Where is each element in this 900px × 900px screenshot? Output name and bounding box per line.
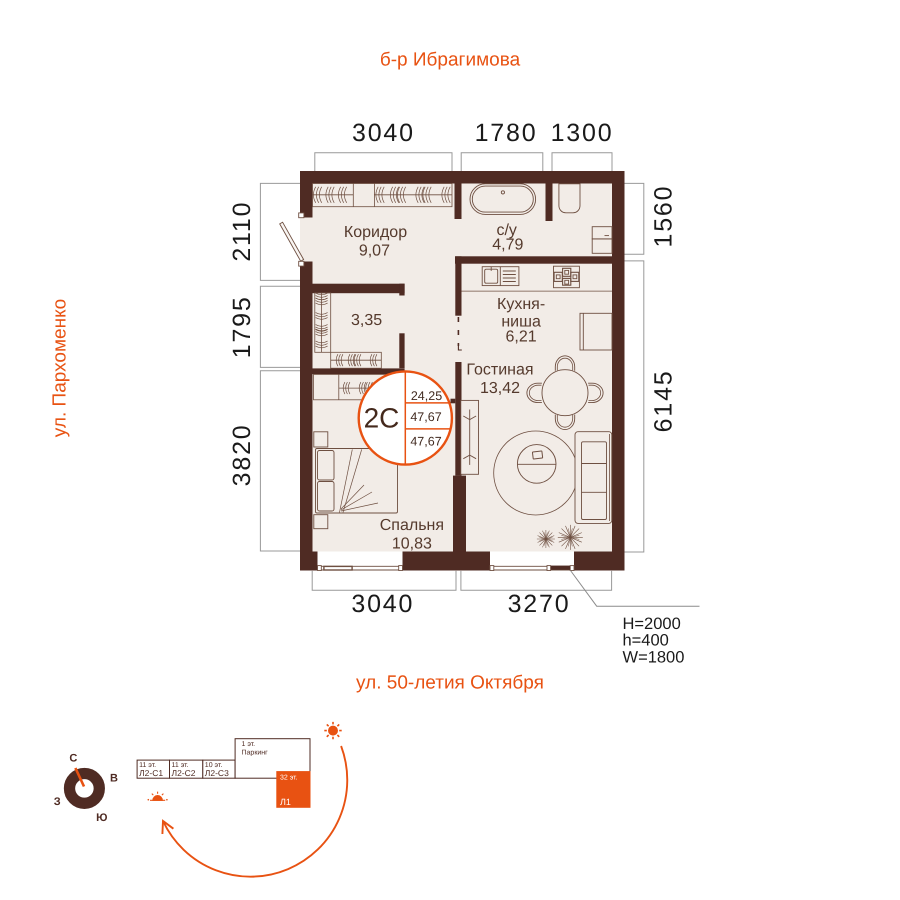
svg-text:3040: 3040	[351, 590, 414, 618]
svg-text:Паркинг: Паркинг	[242, 749, 269, 756]
svg-text:2С: 2С	[364, 403, 400, 434]
svg-text:Гостиная: Гостиная	[466, 361, 533, 378]
svg-text:h=400: h=400	[623, 632, 669, 650]
svg-text:24,25: 24,25	[411, 389, 442, 403]
svg-text:6,21: 6,21	[506, 329, 537, 346]
svg-text:3270: 3270	[508, 590, 571, 618]
svg-text:ул. 50-летия Октября: ул. 50-летия Октября	[356, 673, 544, 694]
svg-text:13,42: 13,42	[480, 380, 520, 397]
svg-text:Коридор: Коридор	[344, 224, 407, 241]
svg-text:З: З	[54, 796, 61, 808]
svg-text:3040: 3040	[352, 119, 415, 147]
svg-text:Л2-С2: Л2-С2	[172, 768, 196, 778]
svg-text:1560: 1560	[649, 185, 677, 248]
svg-text:1 эт.: 1 эт.	[242, 741, 256, 748]
svg-text:47,67: 47,67	[410, 435, 441, 449]
svg-text:ул. Пархоменко: ул. Пархоменко	[50, 299, 71, 437]
svg-text:2110: 2110	[228, 201, 256, 262]
svg-text:Л1: Л1	[280, 797, 291, 807]
svg-text:6145: 6145	[649, 369, 677, 432]
svg-text:С: С	[69, 753, 77, 765]
svg-text:47,67: 47,67	[410, 410, 441, 424]
svg-text:4,79: 4,79	[492, 237, 523, 254]
svg-text:Ю: Ю	[96, 812, 107, 824]
svg-text:В: В	[110, 773, 118, 785]
svg-text:32 эт.: 32 эт.	[280, 774, 298, 781]
svg-text:3,35: 3,35	[351, 312, 382, 329]
svg-text:1780: 1780	[475, 119, 538, 147]
svg-text:б-р Ибрагимова: б-р Ибрагимова	[380, 50, 521, 71]
svg-text:3820: 3820	[228, 423, 256, 486]
svg-text:9,07: 9,07	[359, 243, 390, 260]
svg-text:Кухня-: Кухня-	[497, 296, 545, 313]
svg-text:Л2-С1: Л2-С1	[139, 768, 163, 778]
svg-text:W=1800: W=1800	[623, 648, 685, 666]
svg-text:Спальня: Спальня	[380, 517, 444, 534]
svg-text:10,83: 10,83	[392, 536, 432, 553]
svg-text:1795: 1795	[228, 295, 256, 358]
svg-text:Л2-С3: Л2-С3	[205, 768, 229, 778]
svg-text:1300: 1300	[551, 119, 614, 147]
svg-text:H=2000: H=2000	[623, 615, 681, 633]
